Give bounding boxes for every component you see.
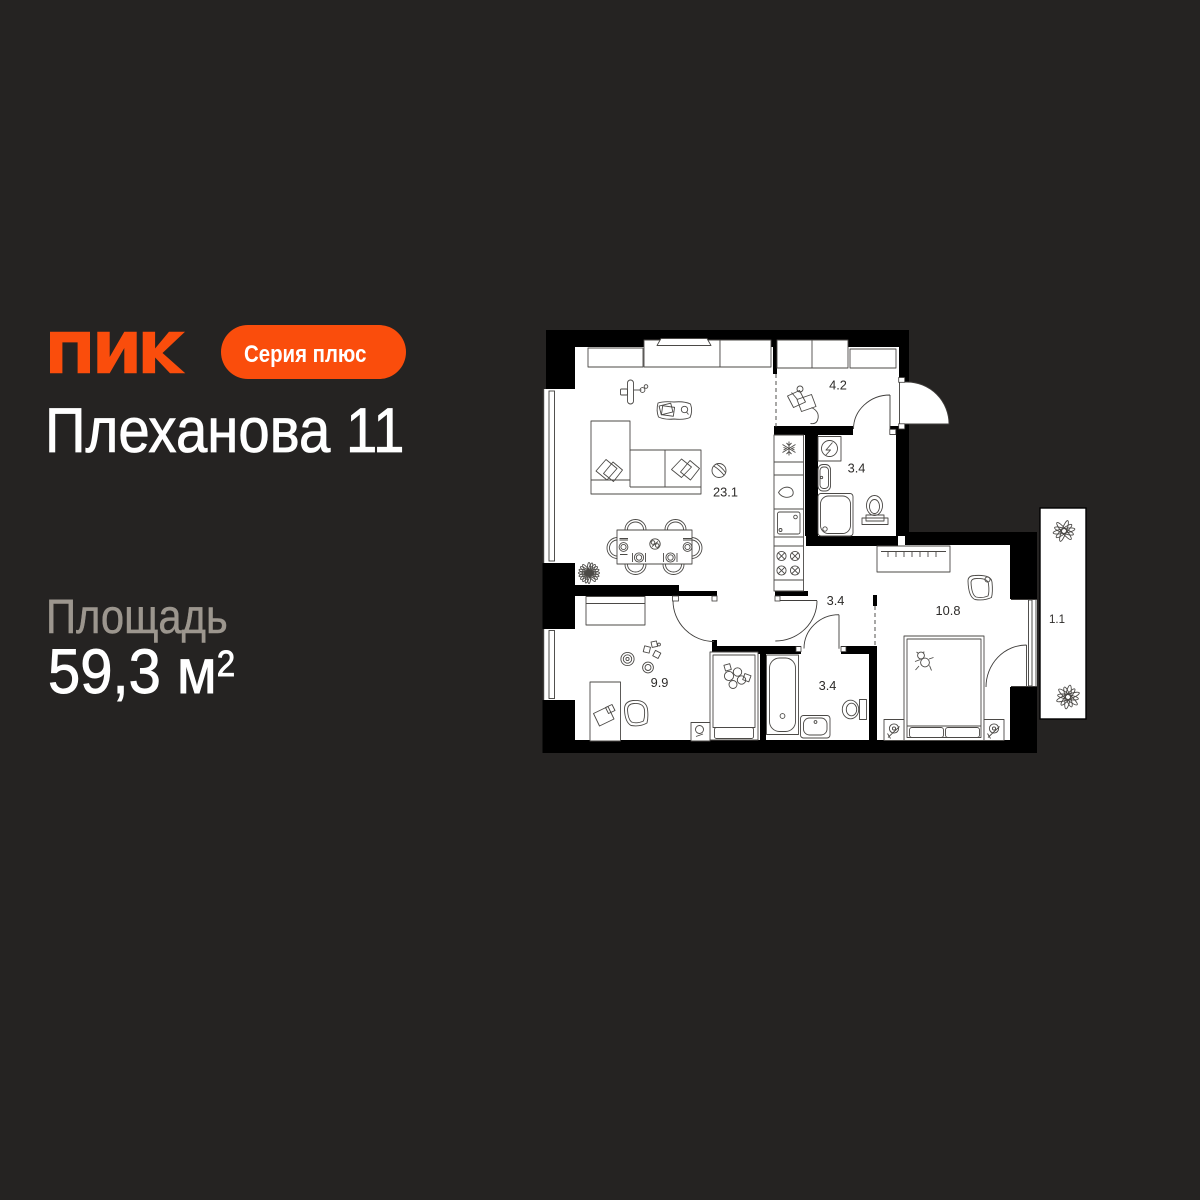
svg-text:10.8: 10.8 — [936, 603, 961, 618]
svg-text:23.1: 23.1 — [713, 485, 738, 500]
svg-text:3.4: 3.4 — [819, 678, 837, 693]
svg-text:3.4: 3.4 — [827, 593, 845, 608]
svg-text:3.4: 3.4 — [848, 461, 866, 476]
svg-text:4.2: 4.2 — [829, 378, 847, 393]
svg-text:9.9: 9.9 — [651, 675, 669, 690]
svg-text:1.1: 1.1 — [1049, 614, 1065, 626]
